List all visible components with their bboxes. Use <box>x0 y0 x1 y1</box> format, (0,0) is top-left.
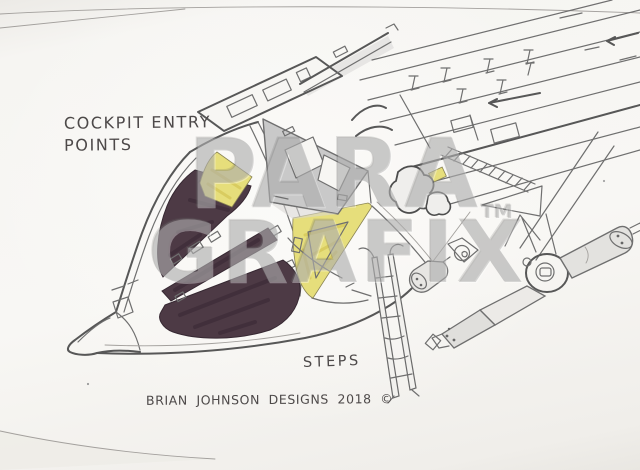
cockpit-entry-label: COCKPIT ENTRY POINTS <box>64 111 212 157</box>
thruster-cylinder-small <box>409 257 450 292</box>
direction-arrow-top <box>607 33 638 45</box>
cockpit-entry-label-line2: POINTS <box>64 133 211 157</box>
nose-beak <box>68 312 140 355</box>
cockpit-window <box>160 260 300 338</box>
artist-signature: BRIAN JOHNSON DESIGNS 2018 © <box>146 391 393 408</box>
scanned-sketch-page: COCKPIT ENTRY POINTS STEPS BRIAN JOHNSON… <box>0 0 640 470</box>
cockpit-entry-label-line1: COCKPIT ENTRY <box>64 111 211 135</box>
direction-arrow-mid <box>489 93 540 107</box>
steps-label: STEPS <box>303 353 361 371</box>
thruster-cone-lower <box>425 286 545 350</box>
thruster-cylinder-upper <box>560 223 640 278</box>
thruster-cluster <box>409 214 640 350</box>
